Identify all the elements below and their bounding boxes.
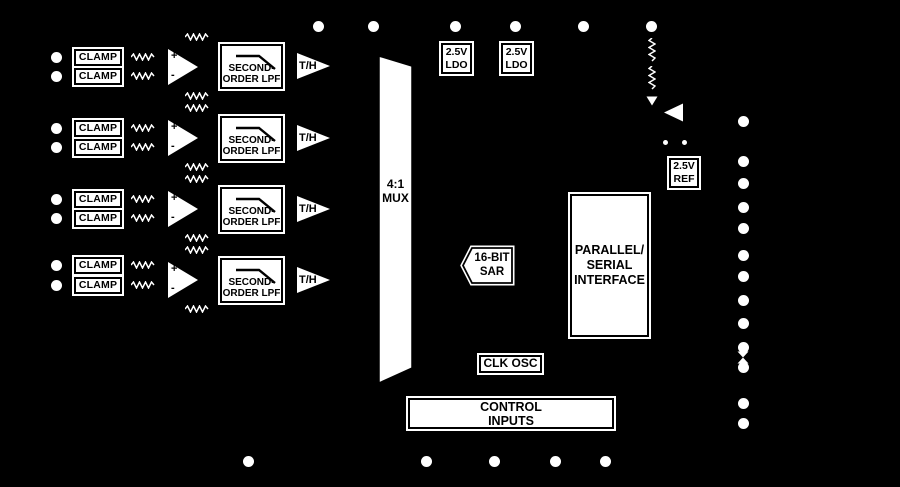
clamp-block: CLAMP [74, 68, 122, 85]
pin-dot [51, 194, 62, 205]
sar-label-line1: 16-BIT [471, 252, 513, 266]
pin-dot [51, 280, 62, 291]
amp-plus-label: + [171, 264, 177, 275]
pin-dot [738, 202, 749, 213]
ldo-label-line2: LDO [443, 59, 470, 72]
pin-dot [738, 398, 749, 409]
block-diagram-canvas: CLAMP CLAMP + - SECOND-ORDER LPF T/H CLA… [0, 0, 900, 487]
pin-dot [489, 456, 500, 467]
interface-label-line2: SERIAL [572, 258, 647, 273]
junction-dot [682, 140, 687, 145]
pin-dot [738, 116, 749, 127]
track-and-hold: T/H [297, 267, 331, 293]
mux-label-line1: 4:1 [377, 178, 414, 192]
pin-dot [738, 318, 749, 329]
junction-dot [663, 140, 668, 145]
resistor-icon [185, 234, 209, 242]
clamp-block: CLAMP [74, 120, 122, 137]
pin-dot [51, 123, 62, 134]
lpf-label-line1: SECOND- [222, 136, 281, 147]
clamp-block: CLAMP [74, 257, 122, 274]
pin-dot [51, 142, 62, 153]
second-order-lpf-block: SECOND-ORDER LPF [220, 116, 283, 161]
amp-minus-label: - [171, 283, 175, 294]
lpf-label-line1: SECOND- [222, 64, 281, 75]
ref-label-line2: REF [671, 173, 697, 186]
ldo-2v5-block-b: 2.5V LDO [501, 43, 532, 74]
sar-adc-block: 16-BITSAR [459, 245, 515, 287]
resistor-icon [648, 38, 656, 63]
clamp-block: CLAMP [74, 277, 122, 294]
arrow-down-icon [646, 96, 658, 106]
clamp-block: CLAMP [74, 191, 122, 208]
resistor-icon [131, 214, 155, 222]
mux-label-line2: MUX [377, 192, 414, 206]
pin-dot [51, 260, 62, 271]
sar-label-line2: SAR [471, 266, 513, 280]
amp-minus-label: - [171, 141, 175, 152]
pin-dot [738, 178, 749, 189]
track-and-hold: T/H [297, 125, 331, 151]
pin-dot [738, 250, 749, 261]
pin-dot [738, 295, 749, 306]
resistor-icon [185, 246, 209, 254]
ldo-2v5-block-a: 2.5V LDO [441, 43, 472, 74]
control-label-line1: CONTROL [410, 401, 612, 415]
ldo-label-line1: 2.5V [503, 46, 530, 59]
resistor-icon [185, 33, 209, 41]
bowtie-marker [737, 351, 749, 364]
amp-minus-label: - [171, 212, 175, 223]
second-order-lpf-block: SECOND-ORDER LPF [220, 258, 283, 303]
pin-dot [550, 456, 561, 467]
clamp-block: CLAMP [74, 49, 122, 66]
amp-plus-label: + [171, 193, 177, 204]
pin-dot [738, 223, 749, 234]
pin-dot [450, 21, 461, 32]
th-label: T/H [299, 274, 317, 286]
pin-dot [600, 456, 611, 467]
pin-dot [313, 21, 324, 32]
lpf-label-line1: SECOND- [222, 278, 281, 289]
resistor-icon [131, 53, 155, 61]
ref-label-line1: 2.5V [671, 160, 697, 173]
lpf-label-line2: ORDER LPF [222, 289, 281, 300]
ref-buffer-triangle [664, 103, 684, 122]
resistor-icon [185, 163, 209, 171]
th-label: T/H [299, 203, 317, 215]
resistor-icon [131, 124, 155, 132]
track-and-hold: T/H [297, 53, 331, 79]
pin-dot [738, 156, 749, 167]
resistor-icon [131, 72, 155, 80]
second-order-lpf-block: SECOND-ORDER LPF [220, 44, 283, 89]
ldo-label-line2: LDO [503, 59, 530, 72]
resistor-icon [185, 92, 209, 100]
ldo-label-line1: 2.5V [443, 46, 470, 59]
amp-minus-label: - [171, 70, 175, 81]
pin-dot [243, 456, 254, 467]
lpf-label-line2: ORDER LPF [222, 218, 281, 229]
lpf-label-line2: ORDER LPF [222, 147, 281, 158]
resistor-icon [185, 305, 209, 313]
lpf-label-line1: SECOND- [222, 207, 281, 218]
pin-dot [51, 52, 62, 63]
pin-dot [510, 21, 521, 32]
clk-osc-block: CLK OSC [479, 355, 542, 373]
mux-4to1: 4:1MUX [377, 54, 414, 385]
lpf-label-line2: ORDER LPF [222, 75, 281, 86]
pin-dot [51, 213, 62, 224]
control-inputs-block: CONTROL INPUTS [408, 398, 614, 429]
th-label: T/H [299, 132, 317, 144]
pin-dot [738, 271, 749, 282]
resistor-icon [131, 143, 155, 151]
ref-2v5-block: 2.5V REF [669, 158, 699, 188]
amp-plus-label: + [171, 51, 177, 62]
resistor-icon [648, 66, 656, 91]
clamp-block: CLAMP [74, 210, 122, 227]
track-and-hold: T/H [297, 196, 331, 222]
amp-plus-label: + [171, 122, 177, 133]
mux-shape [377, 54, 414, 385]
pin-dot [738, 418, 749, 429]
resistor-icon [131, 195, 155, 203]
pin-dot [421, 456, 432, 467]
resistor-icon [131, 281, 155, 289]
resistor-icon [131, 261, 155, 269]
parallel-serial-interface-block: PARALLEL/ SERIAL INTERFACE [570, 194, 649, 337]
interface-label-line3: INTERFACE [572, 273, 647, 288]
resistor-icon [185, 104, 209, 112]
second-order-lpf-block: SECOND-ORDER LPF [220, 187, 283, 232]
resistor-icon [185, 175, 209, 183]
th-label: T/H [299, 60, 317, 72]
control-label-line2: INPUTS [410, 415, 612, 429]
pin-dot [51, 71, 62, 82]
interface-label-line1: PARALLEL/ [572, 243, 647, 258]
pin-dot [368, 21, 379, 32]
clamp-block: CLAMP [74, 139, 122, 156]
pin-dot [646, 21, 657, 32]
pin-dot [578, 21, 589, 32]
